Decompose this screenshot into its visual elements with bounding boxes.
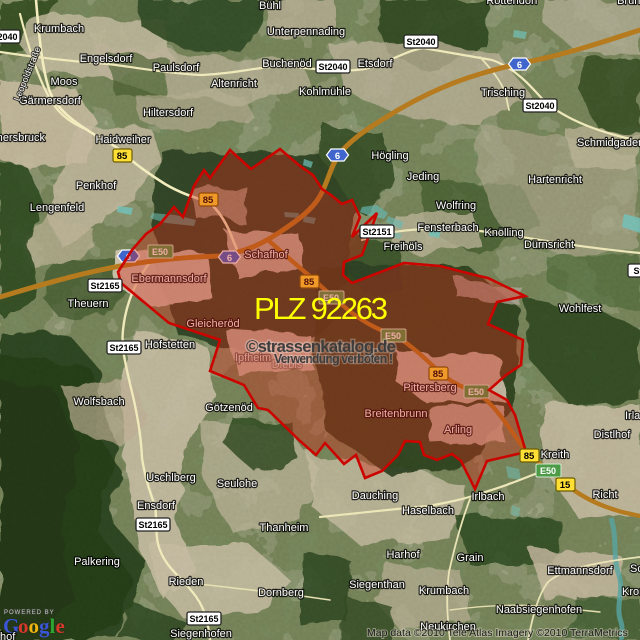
svg-text:St2040: St2040 xyxy=(406,37,435,47)
svg-text:Verwendung verboten !: Verwendung verboten ! xyxy=(274,352,393,366)
svg-text:Map data ©2010 Tele Atlas Ima: Map data ©2010 Tele Atlas Imagery ©2010 … xyxy=(367,627,628,639)
svg-text:Moos: Moos xyxy=(51,76,78,88)
svg-text:Etsdorf: Etsdorf xyxy=(358,58,394,70)
svg-text:St2165: St2165 xyxy=(109,343,138,353)
svg-text:Wohlfest: Wohlfest xyxy=(559,303,602,315)
svg-text:Wolfsbach: Wolfsbach xyxy=(73,396,124,408)
svg-text:Rieden: Rieden xyxy=(169,576,204,588)
svg-text:Ettmannsdorf: Ettmannsdorf xyxy=(547,565,613,577)
svg-text:E50: E50 xyxy=(540,466,556,476)
svg-text:St2165: St2165 xyxy=(189,614,218,624)
svg-text:Ensdorf: Ensdorf xyxy=(137,500,176,512)
svg-text:Seulohe: Seulohe xyxy=(217,478,257,490)
svg-text:Uschlberg: Uschlberg xyxy=(146,472,196,484)
svg-text:Theuern: Theuern xyxy=(68,298,109,310)
svg-text:Freihöls: Freihöls xyxy=(383,241,423,253)
svg-text:85: 85 xyxy=(117,151,128,162)
svg-text:Hartenricht: Hartenricht xyxy=(528,174,582,186)
svg-text:Paulsdorf: Paulsdorf xyxy=(153,62,200,74)
svg-text:Knölling: Knölling xyxy=(484,227,523,239)
svg-text:6: 6 xyxy=(517,60,522,71)
svg-text:Siegenhofen: Siegenhofen xyxy=(170,628,232,640)
svg-text:St2165: St2165 xyxy=(138,520,167,530)
svg-text:Dürnsricht: Dürnsricht xyxy=(524,239,574,251)
svg-text:Haselbach: Haselbach xyxy=(402,505,454,517)
svg-text:St2151: St2151 xyxy=(362,227,391,237)
svg-text:Dauching: Dauching xyxy=(352,490,398,502)
svg-text:Dornberg: Dornberg xyxy=(258,587,304,599)
svg-text:Palkering: Palkering xyxy=(74,556,120,568)
svg-text:Siegenthan: Siegenthan xyxy=(349,579,405,591)
svg-text:Irlbach: Irlbach xyxy=(471,491,504,503)
svg-text:St2165: St2165 xyxy=(90,281,119,291)
svg-text:Penkhof: Penkhof xyxy=(76,180,117,192)
svg-text:Fensterbach: Fensterbach xyxy=(417,222,478,234)
svg-text:Buchenöd: Buchenöd xyxy=(262,58,312,70)
svg-text:o: o xyxy=(29,614,40,638)
svg-text:Wolfring: Wolfring xyxy=(436,200,476,212)
svg-text:Distlhof: Distlhof xyxy=(594,429,632,441)
svg-text:e: e xyxy=(56,614,65,638)
svg-text:hof: hof xyxy=(0,631,16,640)
svg-text:Haidweiher: Haidweiher xyxy=(95,134,150,146)
svg-text:Krumbach: Krumbach xyxy=(419,585,469,597)
svg-text:Richt: Richt xyxy=(592,489,617,501)
svg-text:Engelsdorf: Engelsdorf xyxy=(80,53,134,65)
svg-text:Harhof: Harhof xyxy=(386,549,420,561)
svg-text:Krondorf: Krondorf xyxy=(622,586,640,598)
svg-text:Unterpennading: Unterpennading xyxy=(267,26,345,38)
svg-text:Gärmersdorf: Gärmersdorf xyxy=(19,95,82,107)
svg-text:Thanheim: Thanheim xyxy=(260,522,309,534)
svg-text:Lengenfeld: Lengenfeld xyxy=(30,202,84,214)
svg-text:Höfstetten: Höfstetten xyxy=(145,339,195,351)
svg-text:Schwa: Schwa xyxy=(630,563,640,575)
svg-text:Kreith: Kreith xyxy=(541,449,570,461)
svg-text:g: g xyxy=(39,614,50,638)
svg-text:Högling: Högling xyxy=(371,150,408,162)
svg-text:St: St xyxy=(634,266,640,276)
svg-text:Kohlmühle: Kohlmühle xyxy=(299,86,351,98)
svg-text:85: 85 xyxy=(524,451,535,462)
svg-text:Hiltersdorf: Hiltersdorf xyxy=(143,107,194,119)
svg-text:Naabsiegenhofen: Naabsiegenhofen xyxy=(496,604,582,616)
svg-text:St2040: St2040 xyxy=(318,62,347,72)
svg-text:mersbruck: mersbruck xyxy=(0,132,45,144)
svg-text:St2040: St2040 xyxy=(0,32,18,42)
svg-text:Irlach: Irlach xyxy=(625,410,640,422)
svg-text:Rottendorf: Rottendorf xyxy=(486,0,538,7)
svg-text:Altenricht: Altenricht xyxy=(211,78,257,90)
svg-text:Grain: Grain xyxy=(457,552,484,564)
svg-text:Krumbach: Krumbach xyxy=(34,23,84,35)
svg-text:PLZ 92263: PLZ 92263 xyxy=(254,291,388,326)
svg-text:St2040: St2040 xyxy=(525,101,554,111)
svg-text:15: 15 xyxy=(560,480,571,491)
svg-text:6: 6 xyxy=(335,151,340,162)
svg-text:Brünst: Brünst xyxy=(617,0,640,7)
svg-text:Jeding: Jeding xyxy=(407,171,439,183)
svg-text:o: o xyxy=(18,614,29,638)
svg-text:Trisching: Trisching xyxy=(481,87,525,99)
svg-text:Götzenöd: Götzenöd xyxy=(205,402,253,414)
svg-text:Bühl: Bühl xyxy=(259,0,281,12)
svg-text:Schmidgaden: Schmidgaden xyxy=(577,137,640,149)
